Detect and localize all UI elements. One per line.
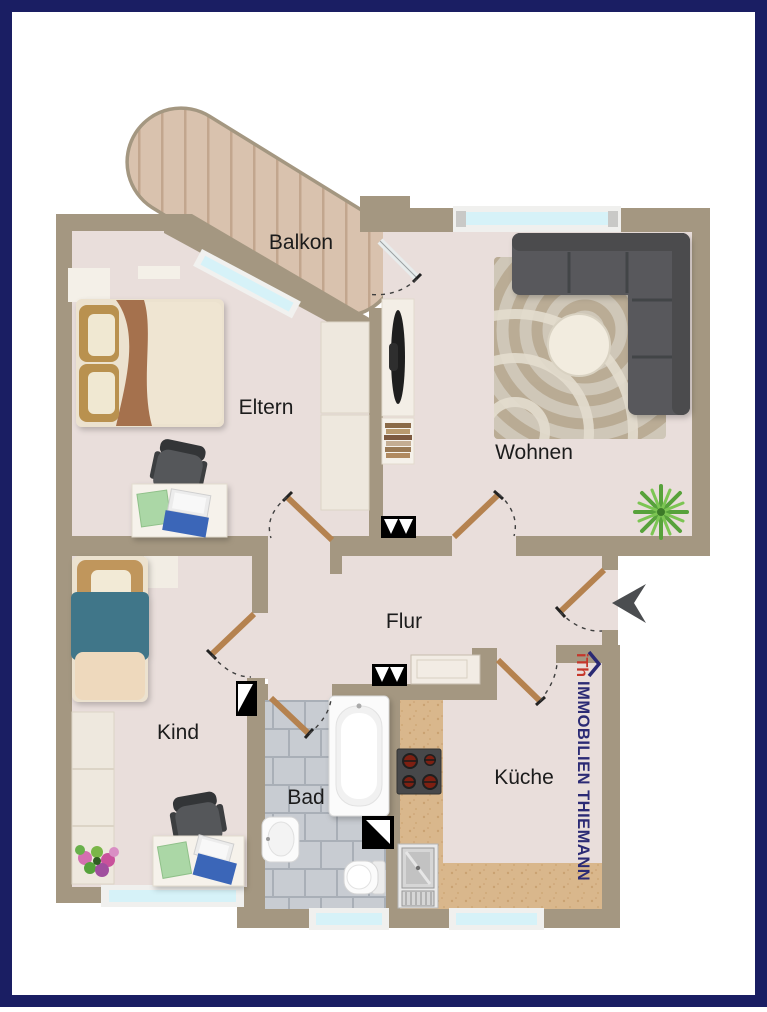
doorway-kueche [497,645,556,665]
hall-cupboard [411,655,480,684]
coffee-table [548,314,610,376]
doorway-entrance [602,570,618,630]
label-kind: Kind [157,721,199,744]
wall-wohnen-right [692,208,710,556]
wall-flur-top-mid [330,536,452,556]
doorway-eltern [268,536,332,556]
wall-eltern-wohnen [369,308,383,536]
double-bed [76,299,224,427]
wall-eltern-top [56,214,178,231]
desk-kind [153,835,244,886]
wall-kind-right-upper [252,556,268,613]
label-bad: Bad [287,786,324,809]
wall-entrance-top-stub [602,556,618,570]
wardrobe-eltern-1 [321,322,369,413]
window-kueche [449,908,544,930]
wall-balcony-stub [360,196,410,232]
window-bad [309,908,389,930]
wash-basin [262,817,299,862]
floorplan-page: Balkon Eltern Wohnen Flur Kind Bad Küche… [0,0,767,1007]
shaft-symbol-wohnen [381,516,416,538]
logo-monogram: iTh [573,653,590,677]
desk-eltern [132,484,227,537]
wall-stub-hinge [330,556,342,574]
wall-wohnen-bottom [516,536,710,556]
label-flur: Flur [386,610,422,633]
wall-shelf [138,266,180,279]
logo-company-name: IMMOBILIEN THIEMANN [574,681,592,881]
shaft-symbol-kind [236,681,257,716]
kitchen-sink [398,844,438,908]
doorway-bad [268,684,332,700]
window-wohnen [453,206,621,232]
plant [635,486,687,538]
wall-eltern-bottom [56,536,268,556]
bathtub [329,696,389,816]
kind-shelf [144,556,178,588]
doorway-kind [252,613,268,679]
label-balkon: Balkon [269,231,333,254]
shaft-symbol-bad [362,816,394,849]
label-kueche: Küche [494,766,554,789]
single-bed [71,556,149,702]
nightstand [68,268,110,302]
label-wohnen: Wohnen [495,441,573,464]
wardrobe-eltern-2 [321,415,369,510]
shaft-symbol-flur [372,664,407,686]
laptop-eltern [162,488,213,537]
toilet [344,861,385,894]
label-eltern: Eltern [239,396,294,419]
floorplan-svg: Balkon Eltern Wohnen Flur Kind Bad Küche… [0,0,767,1007]
window-kind [101,885,244,907]
wall-kueche-right [602,663,620,909]
stove [397,749,441,794]
wall-left [56,214,72,903]
doorway-wohnen [452,536,516,556]
